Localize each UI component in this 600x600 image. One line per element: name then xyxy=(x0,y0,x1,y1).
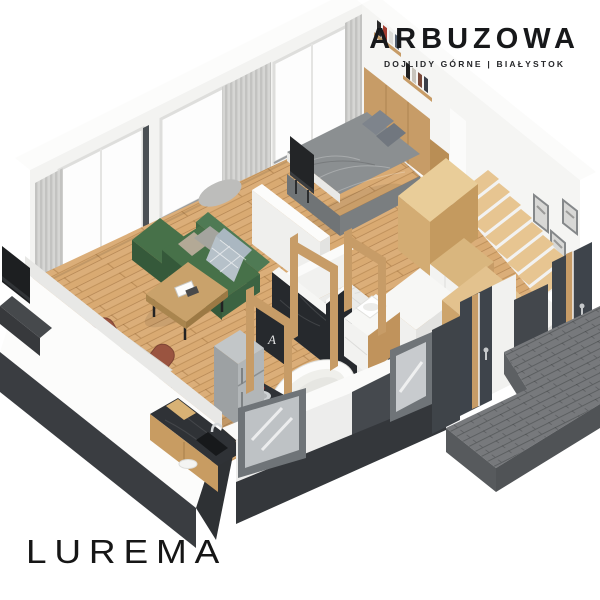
door-handle xyxy=(580,304,585,309)
decor-letter-art: A xyxy=(267,332,276,347)
project-branding: ARBUZOWA DOJLIDY GÓRNE | BIAŁYSTOK xyxy=(369,25,580,69)
project-title: ARBUZOWA xyxy=(369,25,580,54)
apartment-3d-render: A xyxy=(0,0,600,600)
door-handle xyxy=(484,348,489,353)
floorplan-poster: A xyxy=(0,0,600,600)
studio-logo: LUREMA xyxy=(26,533,227,571)
wall-stub-dark xyxy=(432,316,460,434)
curtain-bedroom xyxy=(345,14,362,129)
project-location: DOJLIDY GÓRNE | BIAŁYSTOK xyxy=(369,59,580,69)
entrance-door xyxy=(460,286,492,416)
plate xyxy=(179,460,197,469)
